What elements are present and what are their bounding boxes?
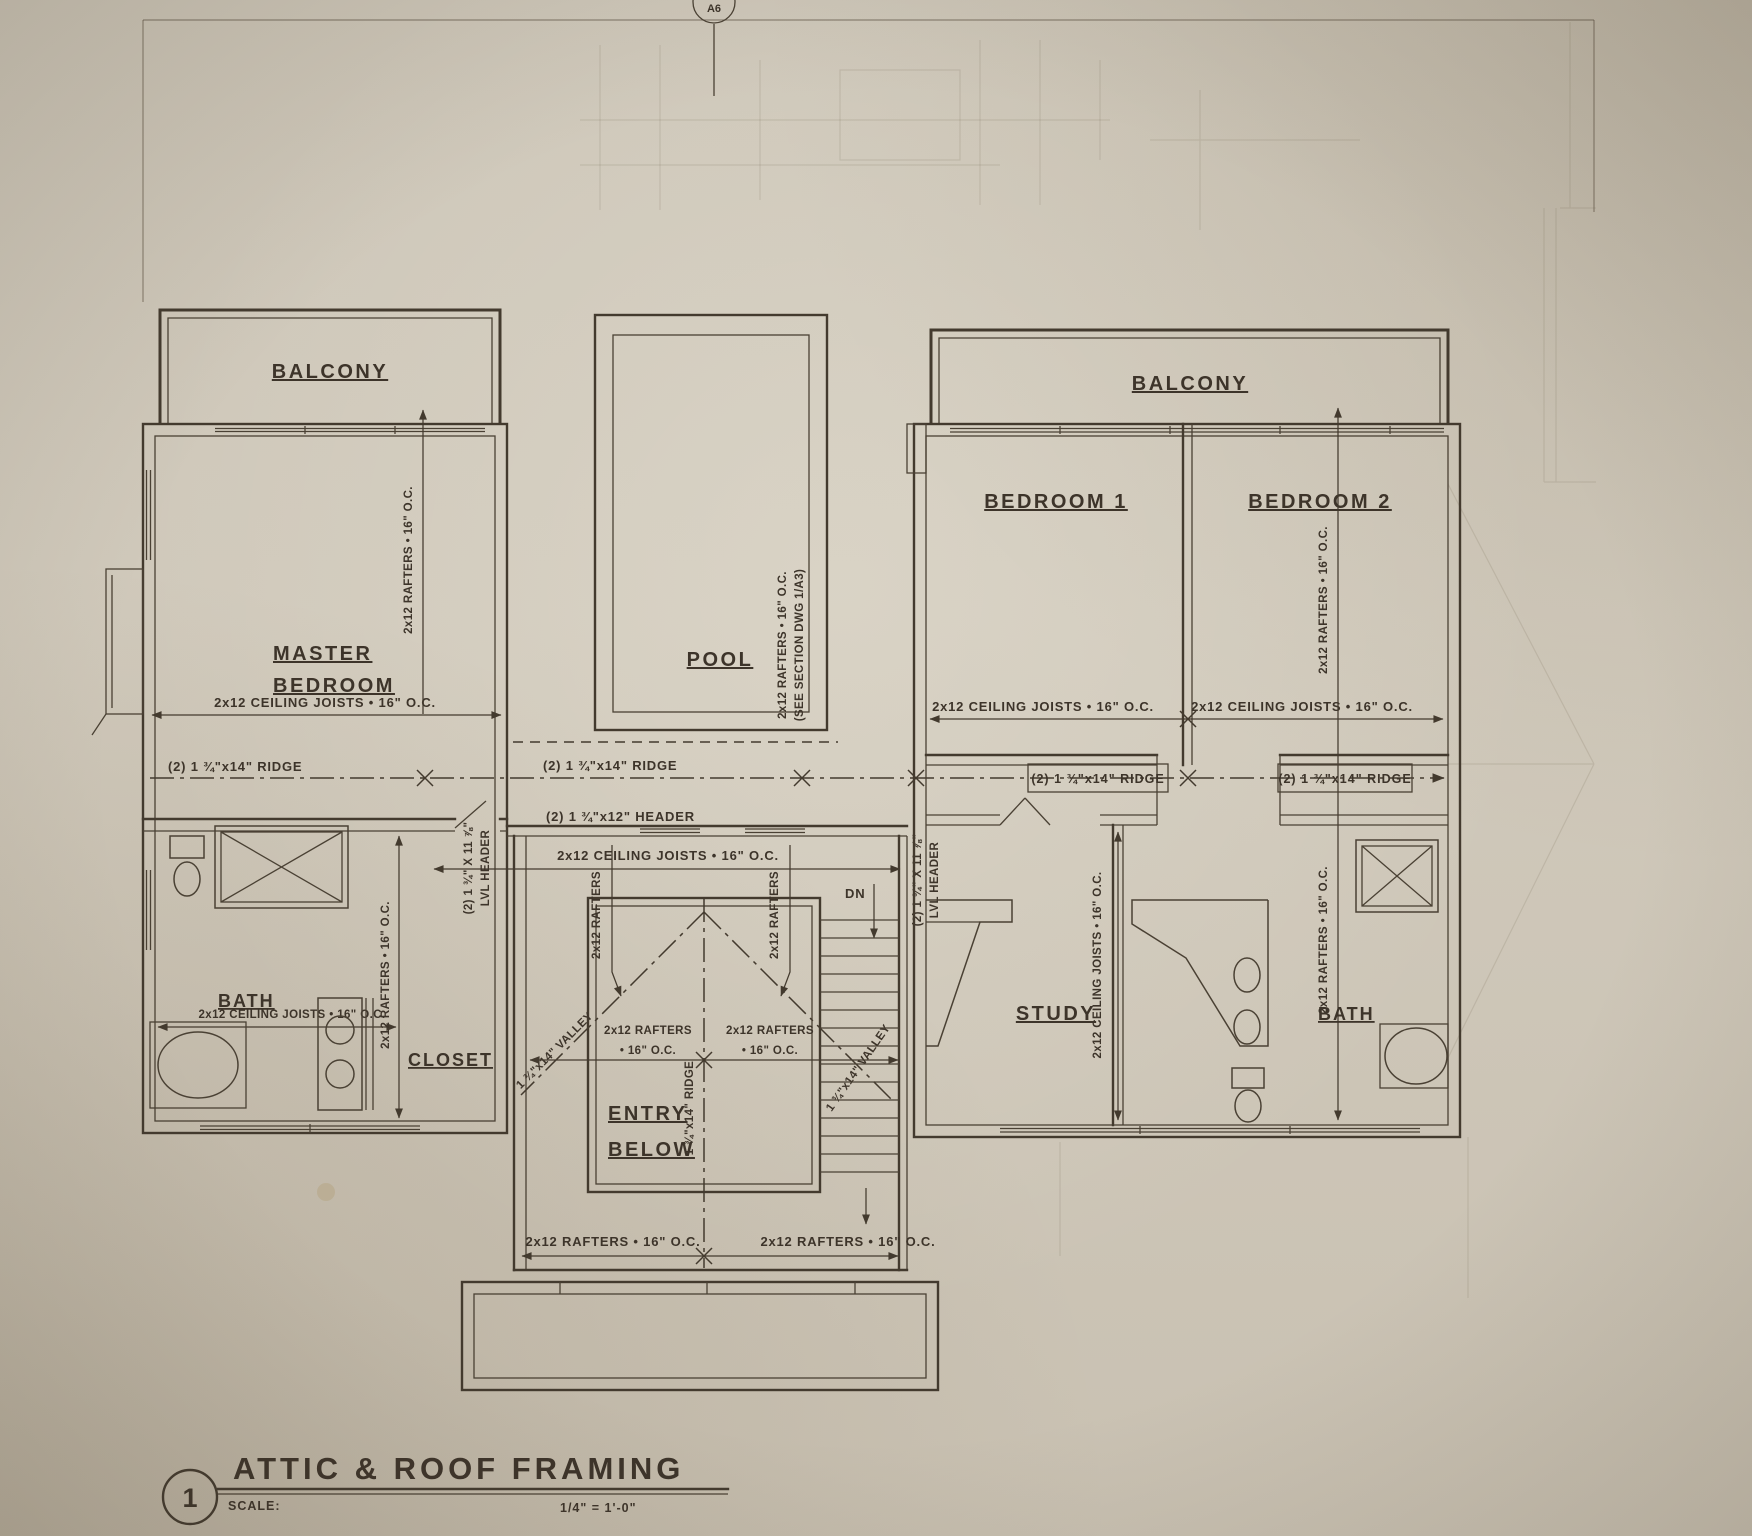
bath-vanity-fixture xyxy=(1132,900,1268,1046)
bath-left-label: BATH xyxy=(218,991,275,1011)
ridge-label-closet2: (2) 1 ¾"x14" RIDGE xyxy=(1278,772,1411,786)
bath-right-rafters-note: 2x12 RAFTERS • 16" O.C. xyxy=(1318,866,1330,1014)
scale-label: SCALE: xyxy=(228,1499,281,1513)
left-wing: BALCONY MASTER BEDROOM 2x12 CEILING JOIS… xyxy=(92,310,507,1133)
bath-right-label: BATH xyxy=(1318,1004,1375,1024)
center-section: (2) 1 ¾"x12" HEADER 2x12 CEILING JOISTS … xyxy=(434,742,941,1390)
master-label-line2: BEDROOM xyxy=(273,675,395,697)
drawing-title: ATTIC & ROOF FRAMING xyxy=(233,1451,684,1486)
bedroom1-label: BEDROOM 1 xyxy=(984,491,1128,513)
balcony-right-label: BALCONY xyxy=(1132,373,1248,395)
study-joists-note: 2x12 CEILING JOISTS • 16" O.C. xyxy=(1092,871,1104,1058)
shower-fixture xyxy=(215,826,348,908)
attic-roof-framing-plan: A6 BALCONY MASTER BEDROOM 2x12 CEILING J… xyxy=(0,0,1752,1536)
bedroom1-joists-note: 2x12 CEILING JOISTS • 16" O.C. xyxy=(932,699,1154,714)
header-label: (2) 1 ¾"x12" HEADER xyxy=(546,809,695,824)
bathtub-right-fixture xyxy=(1380,1024,1448,1088)
lvl-header-right-line2: LVL HEADER xyxy=(929,842,941,919)
toilet-right-fixture xyxy=(1232,1068,1264,1122)
entry-label-line1: ENTRY xyxy=(608,1103,688,1125)
right-wing: BALCONY BEDROOM 1 BEDROOM 2 2x12 CEILING… xyxy=(907,330,1460,1137)
ridge-label-center: (2) 1 ¾"x14" RIDGE xyxy=(543,758,677,773)
scale-value: 1/4" = 1'-0" xyxy=(560,1501,637,1515)
entry-rafters-l-line1: 2x12 RAFTERS xyxy=(604,1025,692,1037)
lvl-header-left-line1: (2) 1 ¾" X 11 ⅞" xyxy=(463,822,475,915)
ridge-line: (2) 1 ¾"x14" RIDGE (2) 1 ¾"x14" RIDGE xyxy=(150,758,1444,786)
master-label-line1: MASTER xyxy=(273,643,372,665)
bedroom2-joists-note: 2x12 CEILING JOISTS • 16" O.C. xyxy=(1191,699,1413,714)
ridge-label-closet1: (2) 1 ¾"x14" RIDGE xyxy=(1031,772,1164,786)
ridge-label-left: (2) 1 ¾"x14" RIDGE xyxy=(168,759,302,774)
study-label: STUDY xyxy=(1016,1003,1096,1025)
entry-label-line2: BELOW xyxy=(608,1139,695,1161)
bathtub-fixture xyxy=(150,1022,246,1108)
detail-number: 1 xyxy=(182,1483,197,1513)
bath-rafters-note: 2x12 RAFTERS • 16" O.C. xyxy=(380,901,392,1049)
section-marker: A6 xyxy=(693,0,735,96)
entry-rafters-r-line2: • 16" O.C. xyxy=(742,1045,798,1057)
bedroom2-rafters-note: 2x12 RAFTERS • 16" O.C. xyxy=(1318,526,1330,674)
blueprint-sheet: A6 BALCONY MASTER BEDROOM 2x12 CEILING J… xyxy=(0,0,1752,1536)
lvl-header-left-line2: LVL HEADER xyxy=(480,830,492,907)
hall-joists-note: 2x12 CEILING JOISTS • 16" O.C. xyxy=(557,848,779,863)
bottom-rafters-left: 2x12 RAFTERS • 16" O.C. xyxy=(525,1234,700,1249)
entry-rafters-left-vert: 2x12 RAFTERS xyxy=(591,871,603,959)
pool: POOL 2x12 RAFTERS • 16" O.C. (SEE SECTIO… xyxy=(595,315,827,730)
pool-label: POOL xyxy=(687,649,754,671)
pool-rafters-note-line2: (SEE SECTION DWG 1/A3) xyxy=(794,569,806,722)
bath-joists-note: 2x12 CEILING JOISTS • 16" O.C. xyxy=(198,1009,385,1021)
pool-rafters-note-line1: 2x12 RAFTERS • 16" O.C. xyxy=(777,571,789,719)
section-marker-label: A6 xyxy=(707,3,721,15)
master-joists-note: 2x12 CEILING JOISTS • 16" O.C. xyxy=(214,695,436,710)
lower-deck xyxy=(462,1282,938,1390)
bedroom2-label: BEDROOM 2 xyxy=(1248,491,1392,513)
shower-right-fixture xyxy=(1356,840,1438,912)
entry-rafters-right-vert: 2x12 RAFTERS xyxy=(769,871,781,959)
bottom-rafters-right: 2x12 RAFTERS • 16" O.C. xyxy=(760,1234,935,1249)
closet-label: CLOSET xyxy=(408,1050,493,1070)
entry-ridge-note: 1 ¾"x14" RIDGE xyxy=(684,1061,696,1156)
master-rafters-note: 2x12 RAFTERS • 16" O.C. xyxy=(403,486,415,634)
balcony-left-label: BALCONY xyxy=(272,361,388,383)
stairs-down-label: DN xyxy=(845,886,865,901)
entry-rafters-l-line2: • 16" O.C. xyxy=(620,1045,676,1057)
title-block: 1 ATTIC & ROOF FRAMING SCALE: 1/4" = 1'-… xyxy=(163,1451,728,1524)
toilet-fixture xyxy=(170,836,204,896)
entry-rafters-r-line1: 2x12 RAFTERS xyxy=(726,1025,814,1037)
